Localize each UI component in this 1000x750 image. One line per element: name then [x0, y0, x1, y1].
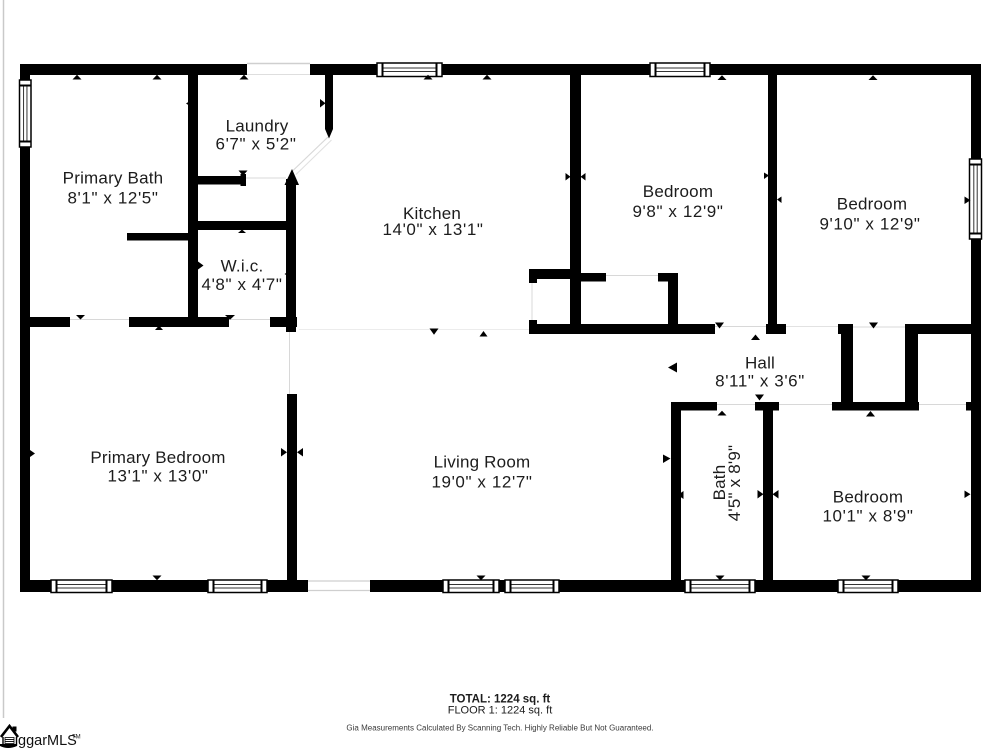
svg-text:Bedroom: Bedroom [643, 182, 713, 201]
svg-text:8'1" x 12'5": 8'1" x 12'5" [68, 189, 159, 208]
svg-text:10'1" x 8'9": 10'1" x 8'9" [823, 507, 914, 526]
svg-text:8'11" x 3'6": 8'11" x 3'6" [715, 372, 805, 391]
svg-text:Bedroom: Bedroom [837, 195, 907, 214]
svg-text:9'10" x 12'9": 9'10" x 12'9" [819, 215, 920, 234]
svg-text:Bedroom: Bedroom [833, 488, 903, 507]
svg-text:13'1" x 13'0": 13'1" x 13'0" [107, 467, 208, 486]
svg-text:4'8" x 4'7": 4'8" x 4'7" [202, 275, 283, 294]
svg-text:6'7" x 5'2": 6'7" x 5'2" [216, 135, 297, 154]
svg-text:Primary Bedroom: Primary Bedroom [90, 448, 225, 467]
svg-text:TM: TM [72, 735, 81, 741]
svg-text:Gia Measurements Calculated By: Gia Measurements Calculated By Scanning … [346, 724, 653, 733]
svg-text:Laundry: Laundry [226, 117, 289, 136]
svg-text:9'8" x 12'9": 9'8" x 12'9" [633, 202, 724, 221]
svg-text:19'0" x 12'7": 19'0" x 12'7" [431, 473, 532, 492]
svg-text:Living Room: Living Room [434, 453, 531, 472]
svg-text:14'0" x 13'1": 14'0" x 13'1" [382, 220, 483, 239]
svg-text:FLOOR 1: 1224 sq. ft: FLOOR 1: 1224 sq. ft [448, 705, 553, 717]
svg-text:W.i.c.: W.i.c. [221, 257, 264, 276]
svg-text:4'5" x 8'9": 4'5" x 8'9" [725, 445, 744, 522]
svg-text:Hall: Hall [745, 354, 775, 373]
svg-text:Primary Bath: Primary Bath [63, 169, 164, 188]
svg-text:ggarMLS: ggarMLS [18, 733, 77, 749]
